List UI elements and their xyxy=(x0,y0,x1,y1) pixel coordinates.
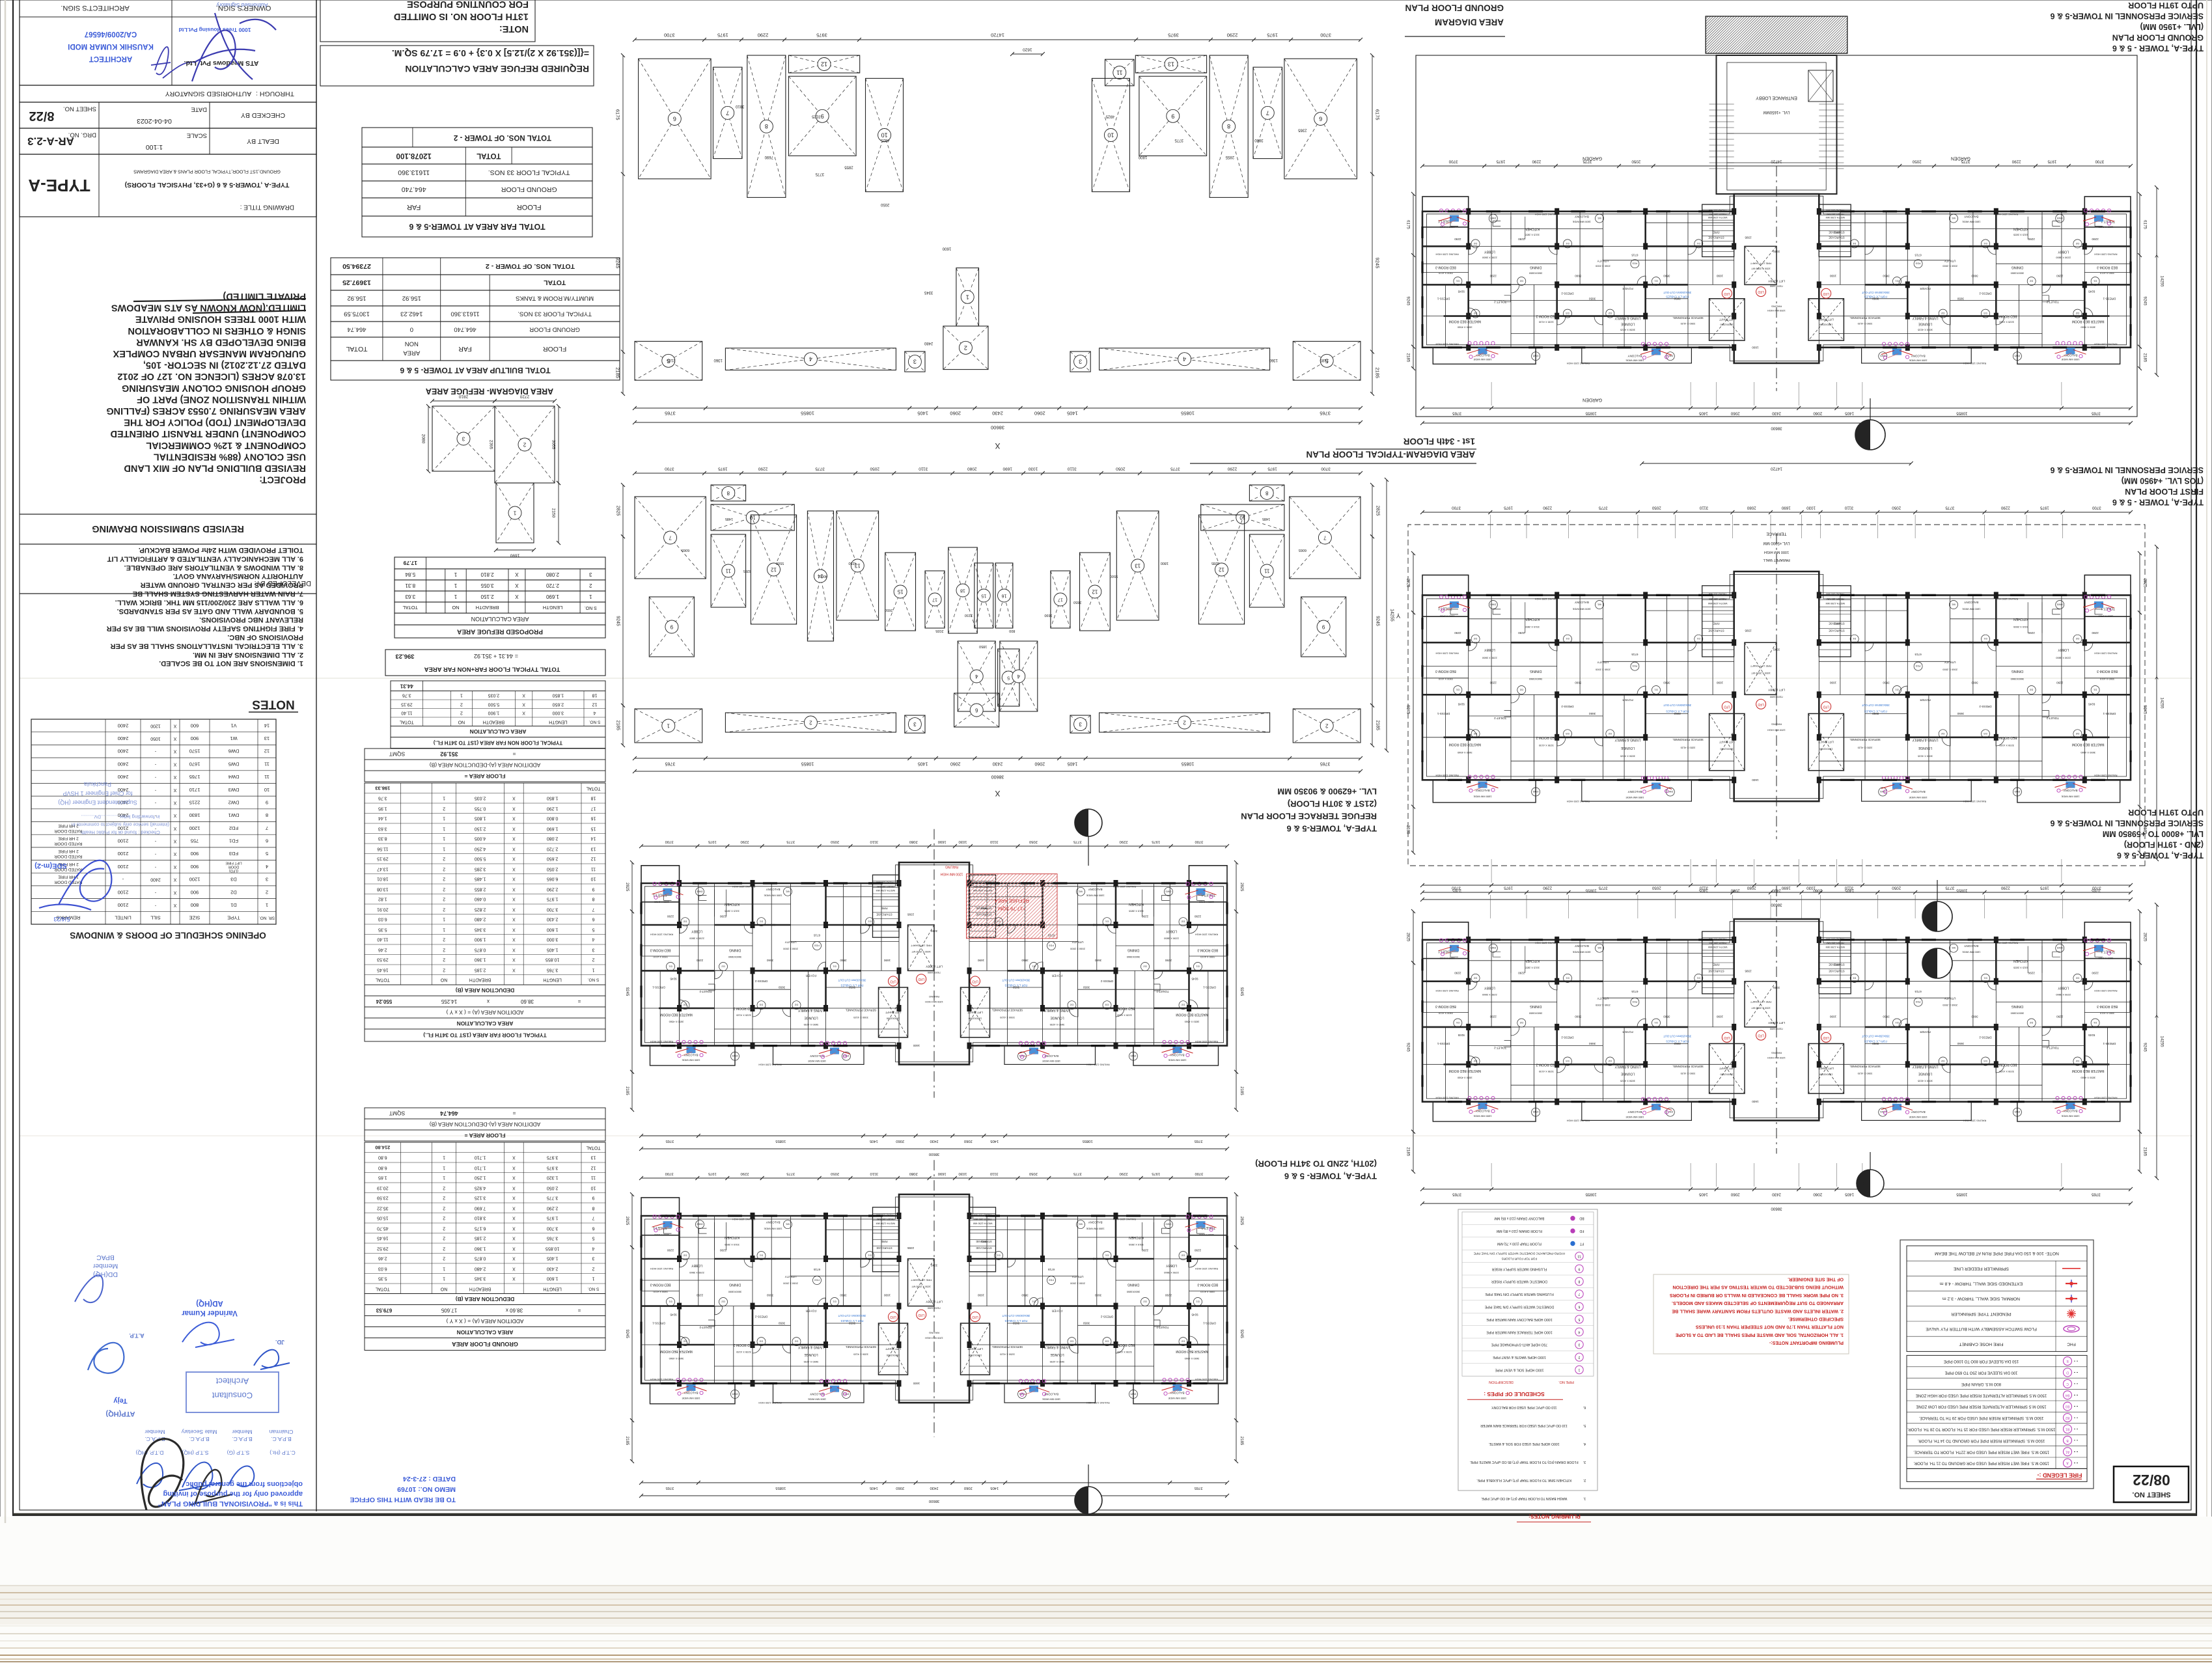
svg-text:LIFT SHAFT: LIFT SHAFT xyxy=(885,1011,901,1014)
svg-text:LOBBY: LOBBY xyxy=(2058,985,2069,989)
svg-text:FOYER: FOYER xyxy=(1622,286,1633,290)
svg-text:2050: 2050 xyxy=(1892,886,1901,890)
svg-text:1900X2000: 1900X2000 xyxy=(1819,323,1832,327)
svg-text:2.46: 2.46 xyxy=(378,1256,387,1261)
svg-text:LIVING & FAMILY: LIVING & FAMILY xyxy=(1614,737,1641,741)
svg-text:2100: 2100 xyxy=(118,902,129,908)
svg-text:B2: B2 xyxy=(2066,1416,2069,1420)
svg-text:D1: D1 xyxy=(1984,976,1987,980)
svg-text:3775: 3775 xyxy=(815,467,825,471)
svg-text:REVISED SUBMISSION DRAWING: REVISED SUBMISSION DRAWING xyxy=(92,523,244,534)
svg-text:3: 3 xyxy=(462,436,465,442)
svg-text:3765: 3765 xyxy=(665,1486,674,1490)
svg-text:3650: 3650 xyxy=(848,986,855,989)
svg-text:3660X3860: 3660X3860 xyxy=(2010,271,2024,275)
svg-text:RAILING: RAILING xyxy=(1771,305,1782,308)
svg-text:80O M.S. DRAIN PIPE: 80O M.S. DRAIN PIPE xyxy=(1961,1382,2001,1386)
svg-text:TOILET-2: TOILET-2 xyxy=(2046,1046,2059,1049)
svg-text:4: 4 xyxy=(809,356,812,363)
svg-text:13.08: 13.08 xyxy=(377,886,389,891)
svg-text:NO: NO xyxy=(458,719,465,724)
svg-text:2.720: 2.720 xyxy=(546,583,559,588)
svg-text:9245: 9245 xyxy=(1239,1330,1243,1339)
svg-text:1: 1 xyxy=(443,846,445,851)
svg-text:TOILET-2: TOILET-2 xyxy=(699,990,712,993)
svg-text:3125: 3125 xyxy=(811,115,820,118)
svg-text:WASH BASIN TO FLOOR TRAP (FT): WASH BASIN TO FLOOR TRAP (FT) 40 OD uPVC… xyxy=(1481,1496,1568,1500)
svg-text:3660X3860: 3660X3860 xyxy=(1126,1291,1140,1294)
svg-text:RAILING 1200 HIGH: RAILING 1200 HIGH xyxy=(1435,253,1458,256)
svg-text:1485: 1485 xyxy=(1262,517,1270,521)
svg-text:1800 X 2450: 1800 X 2450 xyxy=(654,900,669,903)
svg-text:D1: D1 xyxy=(2093,280,2097,283)
svg-text:X: X xyxy=(522,702,525,706)
svg-text:3300 X 4110: 3300 X 4110 xyxy=(1200,955,1215,959)
svg-text:38.60: 38.60 xyxy=(520,998,534,1004)
svg-text:14255: 14255 xyxy=(2160,275,2164,287)
svg-text:2060: 2060 xyxy=(1730,411,1739,416)
svg-text:3660: 3660 xyxy=(1575,1015,1582,1018)
svg-text:DW5: DW5 xyxy=(2014,355,2021,358)
svg-text:D1: D1 xyxy=(1696,637,1700,640)
svg-text:9245: 9245 xyxy=(2088,1034,2095,1037)
svg-text:350x150mm CUT-OUT: 350x150mm CUT-OUT xyxy=(1002,978,1030,982)
svg-text:3650: 3650 xyxy=(1589,712,1596,715)
svg-text:10: 10 xyxy=(749,515,755,521)
svg-text:TYPE-A, TOWER - 5 & 6: TYPE-A, TOWER - 5 & 6 xyxy=(2112,498,2204,507)
svg-text:D1: D1 xyxy=(1196,965,1200,969)
svg-text:DINING: DINING xyxy=(1530,669,1541,673)
svg-text:2: 2 xyxy=(460,702,463,706)
svg-text:4925: 4925 xyxy=(880,138,889,142)
svg-text:2290: 2290 xyxy=(1120,840,1128,844)
svg-text:3235 X 4130: 3235 X 4130 xyxy=(1538,1070,1553,1073)
svg-text:3765: 3765 xyxy=(1195,1486,1203,1490)
svg-text:D1: D1 xyxy=(1696,976,1700,980)
svg-text:11: 11 xyxy=(591,1175,596,1180)
svg-text:RISER-150 MM: RISER-150 MM xyxy=(974,1218,991,1220)
svg-text:X: X xyxy=(522,711,525,715)
svg-text:3860: 3860 xyxy=(1021,959,1029,962)
svg-text:9245: 9245 xyxy=(625,1330,629,1339)
svg-text:=17.79 SQM: =17.79 SQM xyxy=(998,906,1025,912)
svg-text:2185: 2185 xyxy=(616,721,620,731)
svg-text:2290: 2290 xyxy=(2012,159,2021,164)
svg-text:D1: D1 xyxy=(759,920,763,924)
svg-text:BED ROOM-3: BED ROOM-3 xyxy=(1197,948,1218,952)
svg-text:FIRST FLOOR PLAN: FIRST FLOOR PLAN xyxy=(2125,487,2204,496)
svg-text:3300 X 4110: 3300 X 4110 xyxy=(653,1291,668,1294)
svg-text:800: 800 xyxy=(191,902,199,908)
svg-text:KITCHEN: KITCHEN xyxy=(725,902,740,906)
svg-text:NOTE- 100 & 150 DIA FIRE PIP: NOTE- 100 & 150 DIA FIRE PIPE RUN AT BEL… xyxy=(1935,1251,2059,1256)
svg-text:DEALT BY: DEALT BY xyxy=(247,137,279,145)
svg-text:3650: 3650 xyxy=(1872,297,1879,300)
svg-text:8.33: 8.33 xyxy=(378,836,387,841)
svg-text:RAILING 1200 HIGH: RAILING 1200 HIGH xyxy=(758,1063,781,1065)
svg-text:3700: 3700 xyxy=(1321,467,1331,471)
svg-text:LIFT SHAFT: LIFT SHAFT xyxy=(1719,1067,1735,1070)
svg-text:LOUNGE: LOUNGE xyxy=(1620,322,1635,326)
svg-text:3775: 3775 xyxy=(1961,159,1970,164)
svg-text:3315 X 2855: 3315 X 2855 xyxy=(1128,1243,1143,1246)
svg-text:RAILING: RAILING xyxy=(929,1331,939,1334)
svg-text:3650 X 4560: 3650 X 4560 xyxy=(2081,751,2095,754)
svg-text:D2: D2 xyxy=(1941,1060,1944,1063)
svg-text:12: 12 xyxy=(592,702,598,706)
svg-text:3650: 3650 xyxy=(1674,712,1681,715)
svg-text:UTILITY: UTILITY xyxy=(1944,996,1956,1000)
svg-text:D3: D3 xyxy=(1984,732,1987,735)
svg-text:12: 12 xyxy=(264,749,270,754)
svg-text:S.T.P (G): S.T.P (G) xyxy=(227,1450,249,1456)
svg-text:This is a "PROVISIONAL BUILDIN: This is a "PROVISIONAL BUILDING PLAN" xyxy=(158,1500,303,1507)
svg-text:LFD: LFD xyxy=(918,1313,924,1317)
svg-text:2. ALL DIMENSIONS ARE IN MM.: 2. ALL DIMENSIONS ARE IN MM. xyxy=(193,651,303,659)
svg-text:D2: D2 xyxy=(683,1004,687,1007)
svg-text:D3: D3 xyxy=(759,1340,763,1343)
svg-text:3860: 3860 xyxy=(1883,1015,1890,1018)
svg-text:BALCONY: BALCONY xyxy=(2064,789,2078,792)
svg-text:3700: 3700 xyxy=(665,1172,674,1175)
svg-text:3700: 3700 xyxy=(1452,506,1461,510)
svg-text:D1: D1 xyxy=(1895,1021,1899,1024)
svg-text:DW2: DW2 xyxy=(228,800,240,806)
svg-text:D2: D2 xyxy=(1608,1060,1612,1063)
svg-text:X: X xyxy=(512,1165,516,1170)
svg-text:1650 X 2050 MT: 1650 X 2050 MT xyxy=(1751,268,1771,271)
svg-text:LIFT SHAFT: LIFT SHAFT xyxy=(1818,318,1834,322)
svg-text:X: X xyxy=(512,937,516,942)
svg-text:10855: 10855 xyxy=(1956,888,1968,893)
svg-text:WC: WC xyxy=(1969,641,1974,644)
svg-text:3660X3860: 3660X3860 xyxy=(1126,955,1140,959)
svg-text:100 DIA SLEEVE FOR 25O TO 65O: 100 DIA SLEEVE FOR 25O TO 65O PIPE xyxy=(1945,1371,2018,1375)
svg-text:BALCONY: BALCONY xyxy=(1627,790,1642,793)
svg-text:9245: 9245 xyxy=(1458,702,1465,706)
svg-text:RAILING 1200 HIGH: RAILING 1200 HIGH xyxy=(1535,598,1558,600)
svg-text:W1: W1 xyxy=(785,1223,790,1226)
svg-text:2290: 2290 xyxy=(667,1248,674,1252)
svg-text:2: 2 xyxy=(1183,720,1186,726)
svg-text:X: X xyxy=(522,693,525,698)
svg-text:3: 3 xyxy=(589,571,592,577)
svg-text:3650 X 4235: 3650 X 4235 xyxy=(1917,329,1932,332)
svg-text:3660: 3660 xyxy=(766,959,773,962)
svg-text:2185: 2185 xyxy=(1375,367,1381,378)
svg-text:3650 X 4235: 3650 X 4235 xyxy=(803,1360,818,1364)
svg-text:LIVING & FAMILY: LIVING & FAMILY xyxy=(1912,316,1939,320)
svg-text:D1: D1 xyxy=(833,965,836,969)
svg-text:2290: 2290 xyxy=(1518,631,1525,635)
svg-text:B.P.A.C.: B.P.A.C. xyxy=(232,1436,253,1442)
svg-text:3345: 3345 xyxy=(930,929,937,933)
svg-text:RAILING 1200 HIGH: RAILING 1200 HIGH xyxy=(2094,253,2117,256)
svg-text:1900X2000: 1900X2000 xyxy=(886,1017,900,1021)
svg-text:20.91: 20.91 xyxy=(377,907,389,911)
svg-text:5. BOUNDARY WALL AND GATE AS P: 5. BOUNDARY WALL AND GATE AS PER STANDAR… xyxy=(117,607,303,615)
svg-text:(internal) service only subjec: (internal) service only subject to comme… xyxy=(72,822,169,828)
svg-text:D1: D1 xyxy=(833,1300,836,1304)
svg-text:156.92: 156.92 xyxy=(347,295,366,302)
svg-text:1800 MM WIDE: 1800 MM WIDE xyxy=(1473,1115,1492,1118)
svg-text:SERVICE PERSONNEL: SERVICE PERSONNEL xyxy=(1849,1065,1881,1068)
svg-text:PROVIDED AS PER CENTRAL GROUND: PROVIDED AS PER CENTRAL GROUND WATER xyxy=(141,581,303,589)
svg-text:3.285: 3.285 xyxy=(475,866,486,871)
svg-text:14255: 14255 xyxy=(2160,1036,2164,1047)
svg-text:1800 MM WIDE: 1800 MM WIDE xyxy=(1572,608,1591,611)
svg-text:FIRE: FIRE xyxy=(1713,963,1719,967)
svg-text:1: 1 xyxy=(454,571,457,577)
svg-text:1975: 1975 xyxy=(1152,840,1160,844)
svg-text:1.290: 1.290 xyxy=(547,806,559,810)
svg-text:3660X3860: 3660X3860 xyxy=(2010,1012,2024,1015)
svg-text:8: 8 xyxy=(1227,123,1230,130)
svg-text:ADDITION AREA (A)-DEDUCTION AR: ADDITION AREA (A)-DEDUCTION AREA (B) xyxy=(430,1121,541,1128)
svg-text:3300 X 4110: 3300 X 4110 xyxy=(653,955,668,959)
svg-text:D2: D2 xyxy=(1941,732,1944,735)
svg-text:1.65: 1.65 xyxy=(378,1175,387,1180)
svg-text:1690: 1690 xyxy=(1829,681,1836,685)
svg-text:2080: 2080 xyxy=(1747,506,1756,510)
svg-text:3315 X 2855: 3315 X 2855 xyxy=(1524,967,1539,970)
svg-text:STAIRCASE: STAIRCASE xyxy=(876,1246,892,1250)
svg-text:D.T.P. (HQ): D.T.P. (HQ) xyxy=(135,1450,163,1456)
svg-text:6175: 6175 xyxy=(2143,220,2148,229)
svg-text:6: 6 xyxy=(975,708,978,713)
svg-text:2060: 2060 xyxy=(896,1139,904,1143)
svg-text:2290: 2290 xyxy=(1532,159,1541,164)
svg-text:(2ND - 19TH FLOOR): (2ND - 19TH FLOOR) xyxy=(2124,840,2204,849)
svg-text:3345: 3345 xyxy=(1773,648,1780,652)
svg-text:3110: 3110 xyxy=(919,467,928,471)
svg-text:1975: 1975 xyxy=(708,840,717,844)
svg-text:6: 6 xyxy=(1319,116,1322,122)
svg-text:BALCONY: BALCONY xyxy=(1044,1054,1058,1058)
svg-text:RISER-150 MM: RISER-150 MM xyxy=(974,885,991,888)
svg-text:FD3: FD3 xyxy=(1915,262,1920,266)
svg-text:6715: 6715 xyxy=(1631,990,1638,993)
svg-text:UTILITY: UTILITY xyxy=(1944,660,1956,664)
svg-text:Member: Member xyxy=(92,1262,118,1270)
svg-text:D1: D1 xyxy=(1852,637,1856,640)
svg-text:12: 12 xyxy=(591,857,596,861)
svg-text:REFUGE AREA: REFUGE AREA xyxy=(995,898,1029,904)
svg-text:1.710: 1.710 xyxy=(475,1165,486,1170)
svg-text:WIDTH-1250 MM: WIDTH-1250 MM xyxy=(876,1222,896,1225)
svg-text:KITCHEN: KITCHEN xyxy=(2013,227,2028,231)
svg-text:Panchkula: Panchkula xyxy=(84,781,111,788)
svg-text:5: 5 xyxy=(592,1236,594,1241)
svg-text:3: 3 xyxy=(1079,721,1082,727)
svg-text:D1: D1 xyxy=(1032,965,1036,969)
svg-text:464.740: 464.740 xyxy=(454,326,476,333)
svg-text:LFD: LFD xyxy=(972,979,978,983)
svg-text:TOTAL: TOTAL xyxy=(586,786,600,790)
svg-text:X: X xyxy=(173,903,176,907)
svg-text:D1: D1 xyxy=(1984,637,1987,640)
svg-text:1800 MM WIDE: 1800 MM WIDE xyxy=(1042,1398,1061,1401)
svg-text:2060: 2060 xyxy=(1034,411,1045,417)
svg-text:3235 X 4130: 3235 X 4130 xyxy=(1538,744,1553,747)
svg-text:DW1: DW1 xyxy=(228,812,240,818)
svg-text:BALCONY: BALCONY xyxy=(766,1220,781,1224)
svg-text:SDE(m-2): SDE(m-2) xyxy=(35,862,67,870)
svg-text:2050: 2050 xyxy=(870,467,879,471)
svg-text:RAILING 1200 HIGH: RAILING 1200 HIGH xyxy=(1963,362,1986,364)
svg-text:2060: 2060 xyxy=(950,762,961,766)
svg-text:D2: D2 xyxy=(1608,732,1612,735)
svg-text:X: X xyxy=(512,907,516,911)
svg-text:6715: 6715 xyxy=(1915,653,1922,656)
svg-text:2060 X 2000: 2060 X 2000 xyxy=(1942,265,1957,268)
svg-text:16.45: 16.45 xyxy=(377,967,389,972)
svg-text:2080: 2080 xyxy=(909,840,918,844)
svg-text:Mate Secetary: Mate Secetary xyxy=(181,1429,217,1435)
svg-text:-: - xyxy=(154,788,156,792)
svg-text:BALCONY: BALCONY xyxy=(1627,355,1642,358)
svg-text:10: 10 xyxy=(591,1185,596,1190)
svg-text:DW3: DW3 xyxy=(697,890,703,893)
svg-text:UPTO 19TH FLOOR: UPTO 19TH FLOOR xyxy=(2128,1,2204,10)
svg-text:TOILET-2: TOILET-2 xyxy=(1494,717,1507,720)
svg-text:X: X xyxy=(515,583,519,588)
svg-text:D1: D1 xyxy=(868,920,872,924)
svg-text:D2: D2 xyxy=(2075,242,2079,245)
svg-text:RELEVANT NBC PROVISIONS.: RELEVANT NBC PROVISIONS. xyxy=(199,616,303,624)
svg-text:RATED DOOR: RATED DOOR xyxy=(54,842,82,846)
svg-text:3650: 3650 xyxy=(848,1322,855,1325)
svg-text:1800: 1800 xyxy=(1161,561,1168,565)
svg-text:2.185: 2.185 xyxy=(475,1236,486,1241)
svg-text:NON: NON xyxy=(405,340,419,348)
svg-text:3235 X 4130: 3235 X 4130 xyxy=(1538,321,1553,324)
svg-text:NORMAL SIDE WALL, THROW - 3.2: NORMAL SIDE WALL, THROW - 3.2 m xyxy=(1942,1297,2020,1301)
svg-text:3860: 3860 xyxy=(1663,275,1670,278)
svg-text:-: - xyxy=(154,864,156,869)
svg-text:2060 X 2000: 2060 X 2000 xyxy=(1070,1282,1085,1285)
svg-text:DW5: DW5 xyxy=(228,761,240,767)
svg-text:BED ROOM-3: BED ROOM-3 xyxy=(2097,266,2118,269)
svg-text:14720: 14720 xyxy=(1771,467,1782,471)
svg-text:1900X2000: 1900X2000 xyxy=(1819,1073,1832,1077)
svg-text:ARCHITECT: ARCHITECT xyxy=(89,55,132,62)
svg-text:214.80: 214.80 xyxy=(375,1144,390,1150)
svg-text:2185: 2185 xyxy=(1239,1086,1243,1095)
svg-text:1.: 1. xyxy=(1583,1496,1586,1500)
svg-text:3775: 3775 xyxy=(1174,138,1183,142)
svg-text:10.855: 10.855 xyxy=(546,1246,560,1250)
svg-text:LIFT SHAFT: LIFT SHAFT xyxy=(885,1347,901,1351)
svg-text:LFD: LFD xyxy=(1823,292,1829,295)
svg-text:5.: 5. xyxy=(1583,1423,1586,1427)
svg-text:LOUNGE: LOUNGE xyxy=(1918,746,1932,750)
svg-text:6.065: 6.065 xyxy=(547,877,559,881)
svg-text:3660: 3660 xyxy=(1094,1294,1101,1297)
svg-text:12078.100: 12078.100 xyxy=(396,152,432,159)
svg-text:PROVISIONS OF NBC.: PROVISIONS OF NBC. xyxy=(227,633,303,641)
svg-text:LENGTH: LENGTH xyxy=(543,1286,561,1291)
svg-text:1360: 1360 xyxy=(1269,358,1278,362)
svg-text:-: - xyxy=(154,839,156,844)
svg-text:X: X xyxy=(512,1236,516,1241)
svg-text:10855: 10855 xyxy=(801,411,814,417)
svg-text:2.855: 2.855 xyxy=(475,886,486,891)
svg-text:GROUND FLOOR: GROUND FLOOR xyxy=(529,326,580,333)
svg-text:2855: 2855 xyxy=(844,165,853,169)
svg-text:3650: 3650 xyxy=(778,986,785,989)
svg-text:15: 15 xyxy=(591,826,596,831)
svg-text:1975: 1975 xyxy=(1496,159,1505,164)
svg-text:RAILING 1200 HIGH: RAILING 1200 HIGH xyxy=(650,1378,673,1381)
svg-text:3235 X 4130: 3235 X 4130 xyxy=(1998,1070,2013,1073)
svg-text:-: - xyxy=(154,749,156,754)
svg-text:11613.360: 11613.360 xyxy=(398,169,430,176)
svg-text:0.875: 0.875 xyxy=(475,1256,486,1261)
svg-text:FIRE: FIRE xyxy=(881,1240,887,1243)
svg-text:2060 X 2000: 2060 X 2000 xyxy=(1595,668,1610,672)
svg-text:3660: 3660 xyxy=(1575,275,1582,278)
svg-text:S NO.: S NO. xyxy=(585,605,597,610)
svg-text:3110: 3110 xyxy=(1067,467,1076,471)
svg-text:GURUGRAM MANESAR URBAN COMPLEX: GURUGRAM MANESAR URBAN COMPLEX xyxy=(113,348,306,359)
svg-text:D2: D2 xyxy=(1143,965,1147,969)
svg-text:2100: 2100 xyxy=(118,838,129,844)
svg-text:1690: 1690 xyxy=(977,1294,984,1297)
svg-text:3300 X 4110: 3300 X 4110 xyxy=(1438,678,1453,681)
svg-text:D3: D3 xyxy=(1566,1060,1569,1063)
svg-text:3660: 3660 xyxy=(1971,275,1978,278)
svg-text:1000 Trees Housing Pvt.Ltd: 1000 Trees Housing Pvt.Ltd xyxy=(178,27,251,33)
svg-text:DW3: DW3 xyxy=(1165,1223,1172,1226)
svg-text:DW3: DW3 xyxy=(2056,217,2063,220)
svg-text:W1: W1 xyxy=(1597,946,1601,950)
svg-text:2080: 2080 xyxy=(967,467,977,471)
svg-text:6715: 6715 xyxy=(1915,253,1922,256)
svg-text:150O M.S. FIRE WET RISER PIPE: 150O M.S. FIRE WET RISER PIPE USED FOR G… xyxy=(1913,1461,2049,1465)
svg-text:D2: D2 xyxy=(1519,280,1523,283)
svg-text:3315 X 2855: 3315 X 2855 xyxy=(1128,910,1143,913)
svg-text:X: X xyxy=(512,967,516,972)
svg-text:GROUND FLOOR PLAN: GROUND FLOOR PLAN xyxy=(2112,33,2204,42)
svg-text:14: 14 xyxy=(264,722,270,728)
svg-text:TOTAL TYPICAL FLOOR FAR+NON FA: TOTAL TYPICAL FLOOR FAR+NON FAR AREA xyxy=(424,666,560,673)
svg-text:FOYER: FOYER xyxy=(1622,698,1633,702)
svg-text:RAILING 1200 HIGH: RAILING 1200 HIGH xyxy=(1435,652,1458,655)
svg-text:11: 11 xyxy=(1116,70,1122,76)
svg-text:BED ROOM-2: BED ROOM-2 xyxy=(1536,735,1556,739)
svg-text:3775: 3775 xyxy=(786,1172,795,1175)
svg-text:2290: 2290 xyxy=(667,915,674,918)
svg-text:RAILING 1200 HIGH: RAILING 1200 HIGH xyxy=(2094,989,2117,992)
svg-text:1800 X 2450: 1800 X 2450 xyxy=(2098,957,2113,960)
svg-text:350x150mm CUT-OUT: 350x150mm CUT-OUT xyxy=(838,978,866,982)
svg-text:2.720: 2.720 xyxy=(547,846,559,851)
svg-text:-: - xyxy=(154,851,156,856)
svg-text:1.690: 1.690 xyxy=(546,594,559,599)
svg-text:2: 2 xyxy=(1578,1355,1580,1359)
svg-text:6: 6 xyxy=(1578,1305,1580,1309)
svg-text:800: 800 xyxy=(1009,629,1015,633)
svg-text:156.92: 156.92 xyxy=(402,295,421,302)
svg-text:B.P.A.C.: B.P.A.C. xyxy=(271,1436,292,1442)
svg-text:D2: D2 xyxy=(2075,976,2079,980)
svg-text:2050: 2050 xyxy=(831,840,839,844)
svg-text:LFD: LFD xyxy=(1758,290,1764,294)
svg-text:1.850: 1.850 xyxy=(547,796,559,801)
svg-text:3775: 3775 xyxy=(1598,506,1607,510)
svg-text:X: X xyxy=(512,857,516,861)
